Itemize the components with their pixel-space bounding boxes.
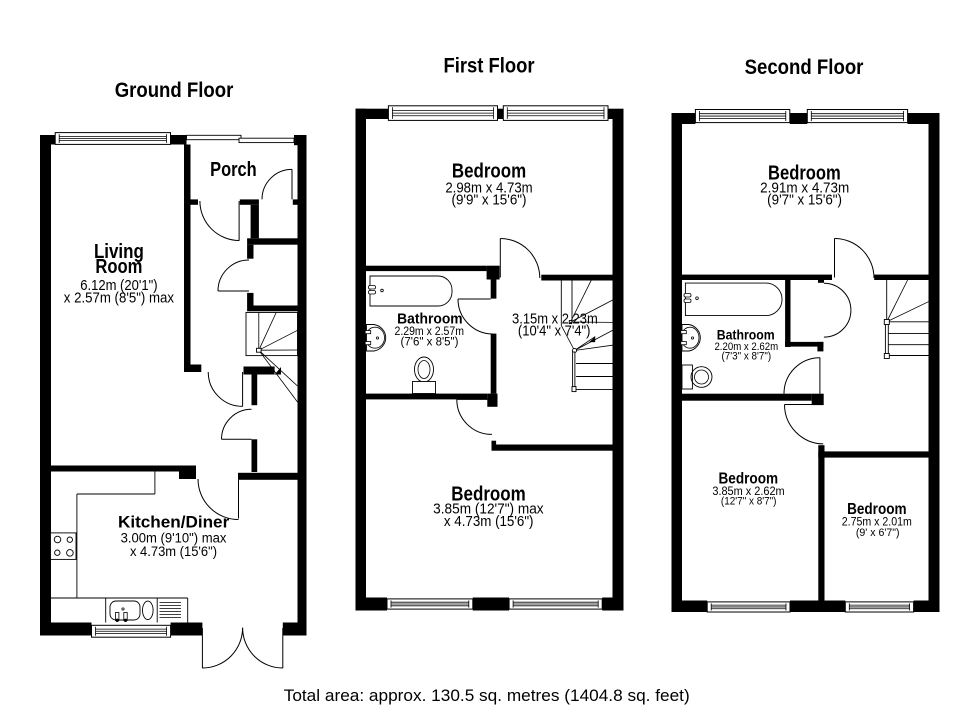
svg-text:(10'4" x 7'4"): (10'4" x 7'4")	[518, 321, 591, 338]
svg-text:(7'6" x 8'5"): (7'6" x 8'5")	[401, 335, 459, 348]
svg-text:(9' x 6'7"): (9' x 6'7")	[856, 527, 900, 539]
svg-text:x 2.57m (8'5") max: x 2.57m (8'5") max	[64, 289, 174, 306]
svg-text:(9'7" x 15'6"): (9'7" x 15'6")	[767, 192, 842, 209]
svg-text:Kitchen/Diner: Kitchen/Diner	[118, 513, 230, 532]
svg-text:Porch: Porch	[210, 157, 257, 180]
svg-text:Second Floor: Second Floor	[745, 56, 864, 79]
svg-text:(12'7" x 8'7"): (12'7" x 8'7")	[721, 496, 777, 508]
svg-text:x 4.73m (15'6"): x 4.73m (15'6")	[130, 544, 217, 560]
svg-text:x 4.73m (15'6"): x 4.73m (15'6")	[444, 513, 534, 530]
svg-text:(9'9" x 15'6"): (9'9" x 15'6")	[452, 192, 527, 209]
svg-text:Bathroom: Bathroom	[717, 327, 775, 343]
svg-text:(7'3" x 8'7"): (7'3" x 8'7")	[721, 351, 771, 363]
svg-text:Room: Room	[95, 255, 142, 278]
svg-text:Total area: approx. 130.5 sq.: Total area: approx. 130.5 sq. metres (14…	[284, 686, 690, 705]
svg-text:First Floor: First Floor	[443, 54, 534, 77]
svg-text:Ground Floor: Ground Floor	[115, 79, 234, 102]
